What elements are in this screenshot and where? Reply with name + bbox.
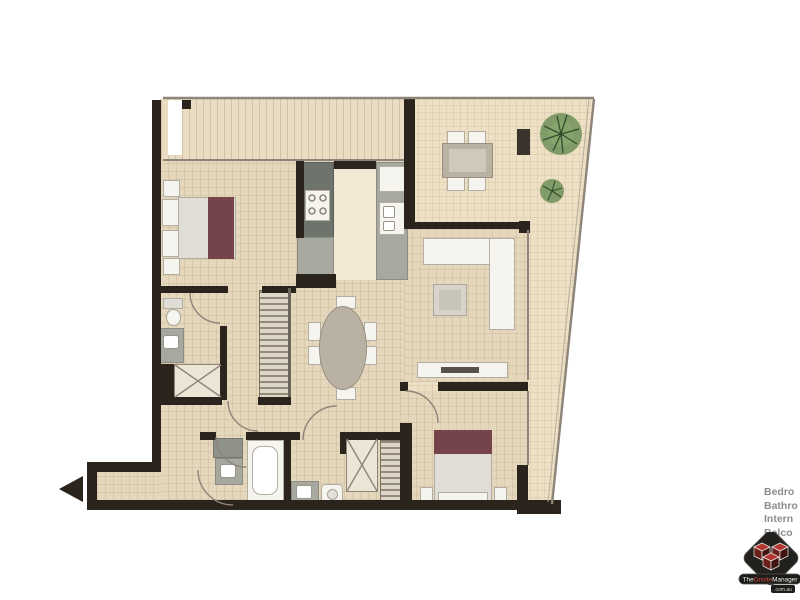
coffee-table-top (439, 290, 461, 310)
wall-living-bed2-right (438, 382, 528, 391)
laundry-appliance-space (346, 438, 378, 492)
logo-domain-text: .com.au (774, 587, 792, 593)
terrace-table-top (449, 149, 486, 172)
walk-in-robe (259, 290, 289, 398)
master-bed-pillows (162, 199, 179, 226)
watermark-line: Bathro (764, 500, 798, 514)
bedside-table (163, 180, 180, 197)
wall-cap (182, 100, 191, 109)
wall-bath-top-2 (246, 432, 300, 440)
master-bed-pillows (162, 230, 179, 257)
wall-entry-top (87, 462, 161, 472)
sofa-vertical (489, 238, 515, 330)
wall-living-top (404, 222, 528, 229)
sink-basin (383, 221, 395, 231)
terrace-planter (517, 129, 530, 155)
wall-left-outer (152, 100, 161, 462)
bedside-table (420, 487, 433, 501)
tv (441, 367, 479, 373)
terrace-chair (447, 177, 465, 191)
ensuite-basin (163, 335, 179, 349)
wall-living-top-cap (519, 221, 530, 233)
wall-ensuite-right (220, 326, 227, 400)
floorplan-canvas: Bedro Bathro Intern Balco al (0, 0, 800, 600)
toilet-tank (163, 298, 183, 309)
fridge (379, 166, 406, 192)
wall-bedroom-right (296, 161, 304, 238)
laundry-tub (296, 485, 312, 499)
logo-brand-text: TheOnsiteManager (743, 577, 799, 584)
bathroom-shower (213, 438, 243, 458)
bedside-table (163, 258, 180, 275)
balcony-opening (168, 100, 182, 155)
balcony-floor (161, 99, 404, 161)
dining-table (319, 306, 367, 390)
entry-floor (97, 470, 161, 501)
watermark-logo: TheOnsiteManager .com.au (738, 532, 800, 600)
wall-robe-bottom (258, 397, 291, 405)
ensuite-shower (174, 364, 222, 398)
kitchen-walkway-floor (334, 168, 376, 280)
wall-ensuite-bottom (152, 397, 222, 405)
watermark-line: Intern (764, 513, 798, 527)
wall-wc-divider (340, 438, 346, 454)
wall-bath-divider (284, 438, 291, 504)
wall-robe-right-thin (288, 288, 291, 400)
sink-basin (383, 206, 395, 218)
toilet-2-bowl (327, 489, 338, 500)
wall-bed2-right (517, 465, 528, 505)
wall-bottom (87, 500, 523, 510)
wall-kitchen-terrace (404, 98, 415, 228)
wall-entry-left (87, 462, 97, 510)
bathroom-basin (220, 464, 236, 478)
wall-kitchen-top (334, 161, 376, 169)
wall-bed2-left (400, 423, 412, 503)
cooktop (305, 190, 330, 221)
bedside-table (494, 487, 507, 501)
wall-bottom-right-cap (517, 500, 561, 514)
bed2-runner (434, 430, 492, 454)
wall-bath-top-1 (200, 432, 216, 440)
master-bed-runner (208, 197, 234, 259)
wall-bedroom-bottom-left (152, 286, 228, 293)
wall-living-bed2-left (400, 382, 408, 391)
toilet-bowl (166, 309, 181, 326)
entry-arrow-icon (59, 476, 83, 502)
wall-kitchen-bottom (296, 274, 336, 288)
watermark-line: Bedro (764, 486, 798, 500)
bathtub-inner (252, 446, 278, 495)
terrace-chair (468, 177, 486, 191)
